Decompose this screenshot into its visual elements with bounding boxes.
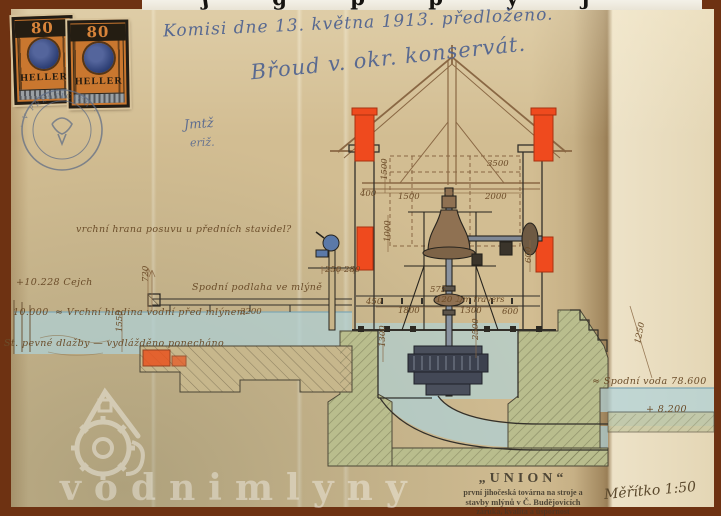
- stamp-currency: HELLER: [16, 71, 71, 84]
- union-factory-stamp: „UNION“ první jihočeská továrna na stroj…: [428, 471, 618, 516]
- pavement-label: St. pevné dlažby — vydlážděno ponecháno: [4, 338, 224, 349]
- dimension-label: 1300: [378, 325, 388, 347]
- union-name: „UNION“: [428, 471, 618, 487]
- stamp-value: 80: [15, 19, 71, 38]
- dimension-label: 2000: [484, 192, 507, 202]
- stamp-value: 80: [70, 24, 125, 42]
- dimension-label: 720: [141, 265, 151, 282]
- postmark: · V PŘEŠTICÍCH ·: [10, 86, 120, 182]
- dimension-label: 1300: [460, 306, 482, 316]
- dimension-label: 1500: [380, 158, 390, 180]
- postmark-text: · V PŘEŠTICÍCH ·: [17, 91, 101, 129]
- dimension-label: 450: [365, 297, 383, 307]
- dimension-label: 120 ⌶/m travers: [436, 295, 505, 305]
- dimension-label: 1000: [383, 220, 393, 242]
- headwater-label: ≈ Vrchní hladina vodní před mlýnem: [55, 307, 246, 318]
- dimension-label: 2500: [471, 318, 481, 341]
- postmark-eagle: [52, 118, 72, 144]
- scanned-mill-plan-photo: ʃ g p p y ƒ: [0, 0, 721, 516]
- tailwater-elevation-label: + 8.200: [646, 404, 687, 415]
- dimension-label: 575: [430, 285, 446, 295]
- initials-note: eriž.: [190, 136, 215, 150]
- initials-note: Jmtž: [184, 116, 215, 133]
- dimension-label: 1800: [398, 306, 420, 316]
- stamp-emblem-disc: [28, 38, 59, 69]
- top-edge-note-label: vrchní hrana posuvu u předních stavidel?: [76, 224, 292, 235]
- dimension-label: 400: [359, 189, 377, 199]
- stamp-emblem-disc: [83, 43, 114, 74]
- union-line4: záruka, kvalita a úspornost: [428, 507, 618, 516]
- floor-label: Spodní podlaha ve mlýně: [192, 282, 322, 293]
- dimension-label: 280: [343, 265, 361, 275]
- union-line3: stavby mlýnů v Č. Budějovicích: [428, 497, 618, 507]
- dimension-label: 1500: [398, 192, 420, 202]
- headwater-value-label: 10.000: [13, 307, 49, 318]
- dimension-label: 250: [324, 265, 342, 275]
- dimension-label: 600: [524, 246, 534, 263]
- dimension-label: 600: [502, 307, 519, 317]
- dimension-label: 3500: [487, 159, 509, 169]
- svg-text:· V PŘEŠTICÍCH ·: · V PŘEŠTICÍCH ·: [17, 91, 101, 129]
- union-line2: první jihočeská továrna na stroje a: [428, 488, 618, 497]
- tailwater-label: ≈ Spodní voda 78.600: [592, 376, 707, 387]
- gauge-label: +10.228 Cejch: [16, 277, 93, 288]
